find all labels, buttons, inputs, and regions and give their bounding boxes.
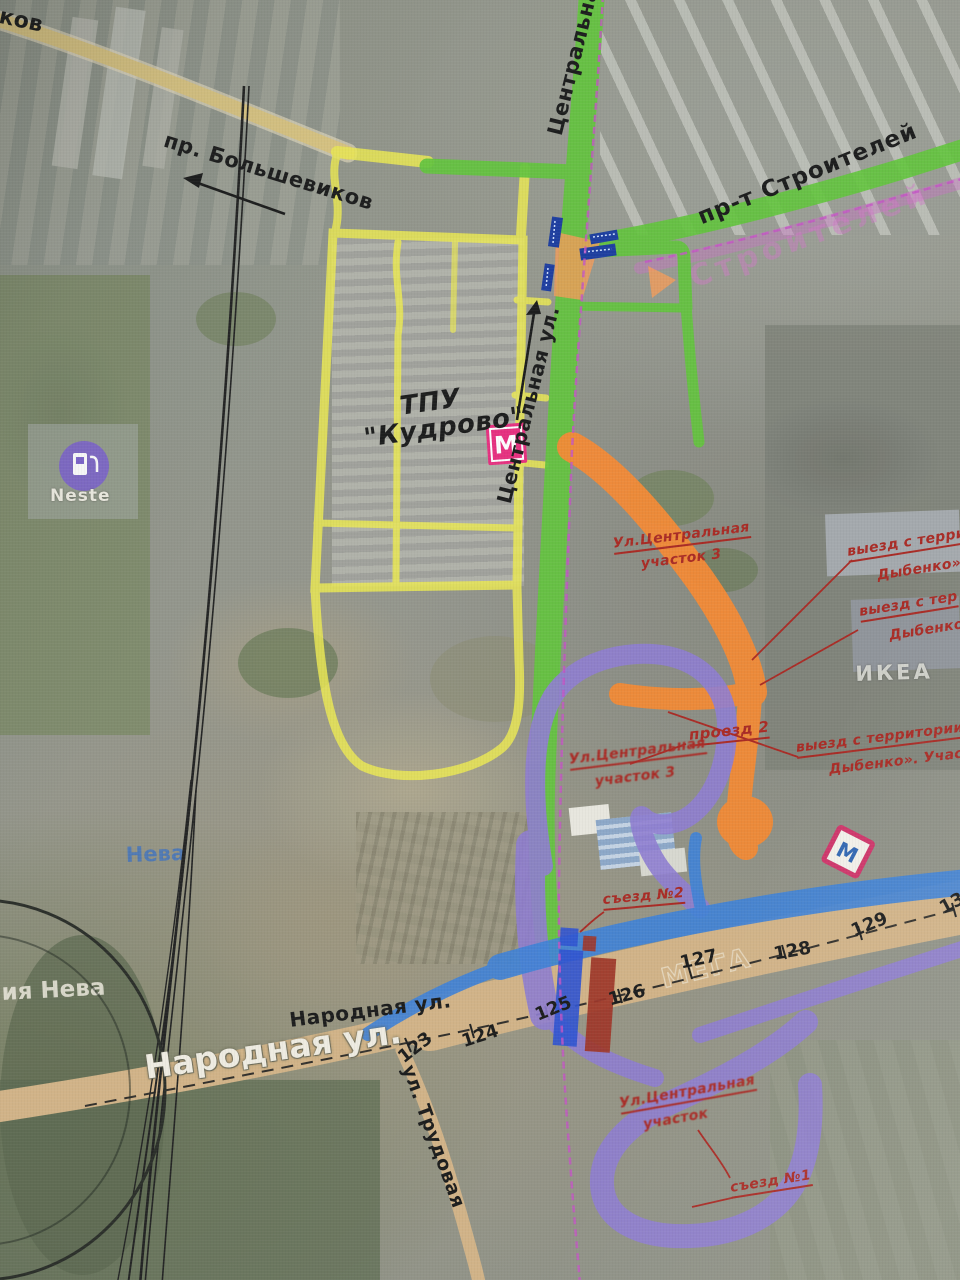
- green-road-link: [427, 166, 574, 172]
- yellow-road: [315, 233, 523, 588]
- yellow-road: [396, 242, 400, 582]
- purple-approach: [530, 845, 545, 1015]
- orange-junction-patch: [648, 266, 676, 298]
- neva-blue-label: Нева: [125, 841, 185, 867]
- yellow-road: [334, 158, 337, 228]
- metro-m-letter: М: [493, 430, 519, 460]
- neva-white-label: ия Нева: [1, 975, 106, 1006]
- neste-fuel-icon: [59, 441, 109, 491]
- bus-stop: [541, 263, 555, 291]
- green-road-branch: [686, 305, 699, 442]
- yellow-road: [453, 242, 455, 330]
- roads-overlay: МЕГА Строителей Нева ия Нева: [0, 0, 960, 1280]
- road-bolshevikov: [0, 18, 348, 153]
- railway-track: [140, 86, 244, 1280]
- map-photo: МЕГА Строителей Нева ия Нева: [0, 0, 960, 1280]
- metro-icon-diamond: М: [823, 827, 873, 877]
- green-road-central: [542, 0, 592, 952]
- yellow-road: [315, 588, 520, 776]
- blue-ramp: [694, 838, 700, 905]
- yellow-road: [521, 168, 525, 235]
- green-road-branch: [566, 306, 684, 308]
- bridge-red-small: [582, 936, 596, 952]
- bolshevikov-arrow: [195, 182, 285, 214]
- road-trudovaya: [402, 1050, 480, 1280]
- metro-icon-kudrovo: М: [486, 423, 528, 466]
- bridge-blue-small: [559, 927, 578, 946]
- orange-ramp-patch: [717, 796, 773, 848]
- yellow-road: [517, 300, 548, 302]
- overlay-orange-roads: [554, 232, 773, 848]
- overlay-yellow-roads: [315, 152, 548, 776]
- yellow-road: [317, 523, 516, 528]
